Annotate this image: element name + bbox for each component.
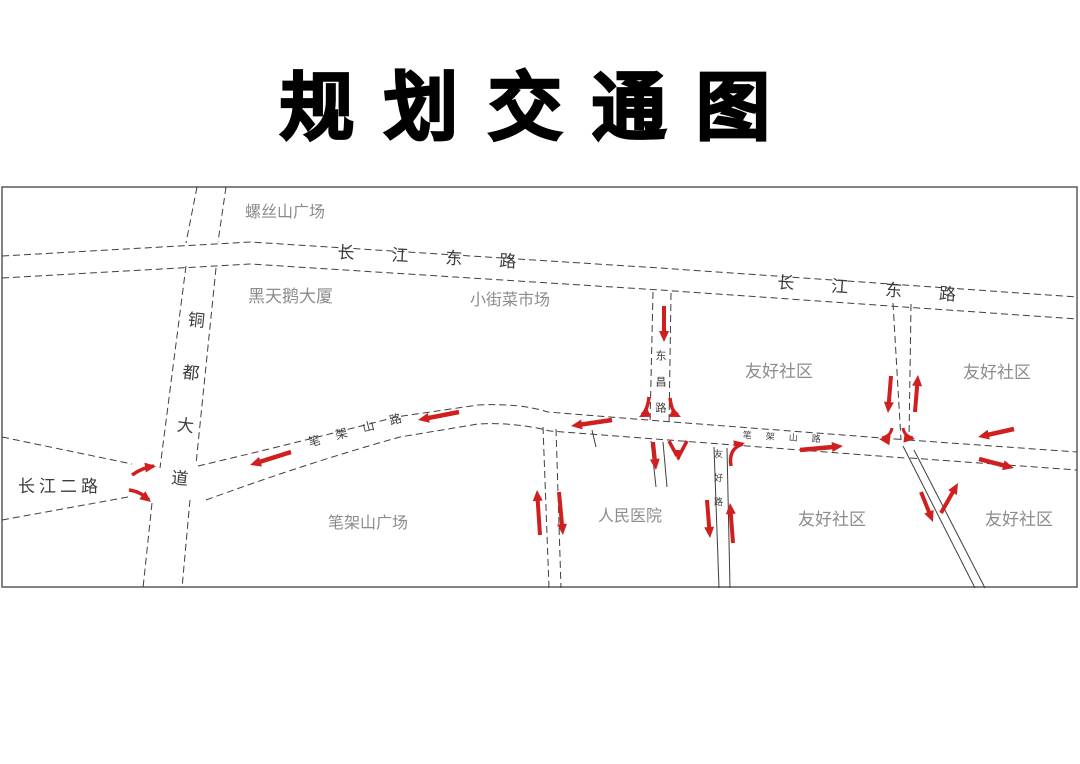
traffic-arrow <box>883 376 894 413</box>
traffic-arrow <box>637 397 651 422</box>
traffic-arrow <box>669 398 683 422</box>
label-youhao-road: 友好路 <box>713 449 722 521</box>
label-youhao-community-2: 友好社区 <box>963 364 1031 381</box>
road-diagonal-se-left <box>903 446 975 588</box>
traffic-arrow <box>132 461 157 475</box>
label-youhao-community-3: 友好社区 <box>798 511 866 528</box>
traffic-arrow <box>979 459 1015 473</box>
traffic-arrow <box>650 442 661 471</box>
traffic-arrow <box>417 412 459 425</box>
traffic-arrow-layer <box>129 306 1015 543</box>
traffic-arrow <box>532 490 543 535</box>
label-renmin-hospital: 人民医院 <box>598 509 662 525</box>
road-changjiang2-upper <box>2 437 132 464</box>
traffic-arrow <box>921 492 938 524</box>
road-diagonal-se-right <box>914 450 985 588</box>
road-tongdu-south-left <box>143 503 152 588</box>
traffic-arrow <box>659 306 669 342</box>
label-youhao-community-4: 友好社区 <box>985 511 1053 528</box>
label-changjiang-2-road: 长江二路 <box>18 478 102 495</box>
traffic-arrow <box>725 503 736 543</box>
road-north-south-right-right <box>909 304 911 441</box>
traffic-arrow <box>977 429 1014 442</box>
road-tongdu-north-right <box>218 187 226 242</box>
road-hospital-west-left <box>543 427 549 588</box>
label-xiaojie-market: 小街菜市场 <box>470 293 550 309</box>
label-bijiashan-plaza: 笔架山广场 <box>328 516 408 532</box>
road-north-south-right-left <box>893 303 901 440</box>
traffic-arrow <box>570 419 612 430</box>
label-dongchang-road: 东昌路 <box>654 350 665 428</box>
road-east-upper <box>908 440 1077 452</box>
traffic-arrow <box>248 452 291 470</box>
label-luosishan-plaza: 螺丝山广场 <box>245 205 325 221</box>
label-youhao-community-1: 友好社区 <box>745 363 813 380</box>
road-hospital-stub-right <box>663 442 667 487</box>
map-canvas <box>0 0 1080 764</box>
road-dongchang-left <box>650 292 653 424</box>
traffic-arrow <box>731 438 747 466</box>
traffic-arrow <box>878 428 892 445</box>
traffic-arrow <box>912 375 923 412</box>
traffic-plan-page: 规划交通图 <box>0 0 1080 764</box>
traffic-arrow <box>941 481 962 513</box>
road-changjiang2-lower <box>2 497 128 520</box>
traffic-arrow <box>669 441 687 461</box>
traffic-arrow <box>129 490 154 506</box>
label-heitiane-building: 黑天鹅大厦 <box>248 288 333 305</box>
road-tongdu-north-left <box>186 187 197 243</box>
road-small-stub <box>592 430 596 447</box>
